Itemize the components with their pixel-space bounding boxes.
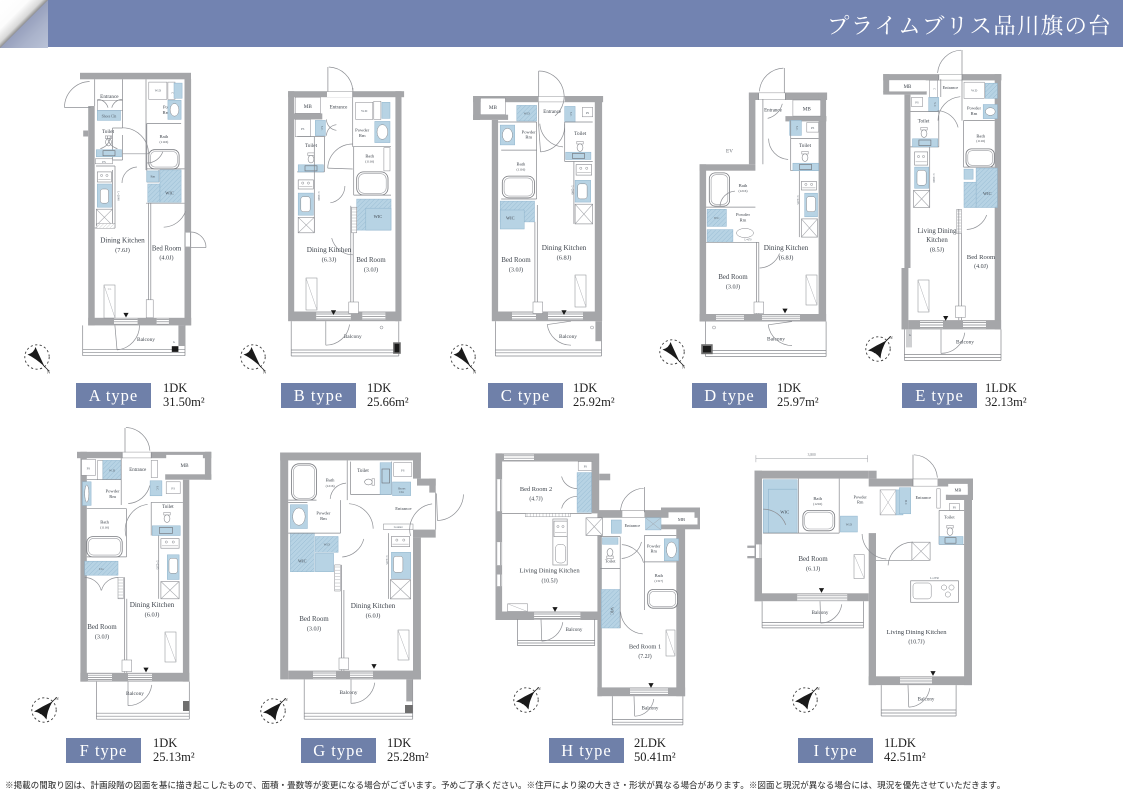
svg-text:Toilet: Toilet [357, 469, 369, 474]
svg-text:Bath: Bath [160, 134, 169, 139]
svg-text:(1116): (1116) [976, 139, 985, 143]
svg-text:(7.6J): (7.6J) [115, 247, 130, 254]
svg-text:Powder: Powder [355, 128, 370, 133]
svg-text:Balcony: Balcony [344, 334, 362, 340]
svg-text:Balcony: Balcony [956, 340, 974, 346]
svg-text:Bath: Bath [326, 478, 335, 483]
svg-text:(6.0J): (6.0J) [145, 612, 160, 619]
svg-text:Counter: Counter [394, 526, 403, 529]
svg-text:Bed Room: Bed Room [87, 624, 117, 631]
svg-text:WIC: WIC [165, 190, 174, 195]
svg-text:(3.0J): (3.0J) [307, 626, 321, 633]
svg-text:Bed Room: Bed Room [718, 274, 748, 281]
svg-text:G: G [173, 340, 176, 344]
svg-text:(1317): (1317) [655, 579, 664, 583]
svg-text:Balcony: Balcony [340, 690, 358, 696]
svg-text:Entrance: Entrance [943, 85, 959, 90]
svg-text:Balcony: Balcony [566, 628, 583, 633]
svg-text:EV: EV [726, 149, 733, 155]
svg-text:CL: CL [108, 288, 112, 291]
svg-text:C: C [933, 88, 936, 90]
svg-text:Entrance: Entrance [543, 110, 562, 115]
svg-text:Clo: Clo [99, 567, 104, 571]
svg-text:Rm: Rm [971, 111, 978, 116]
svg-text:MB: MB [954, 488, 961, 493]
svg-text:Bath: Bath [517, 162, 526, 167]
svg-text:W.D: W.D [109, 468, 116, 472]
svg-text:Bath: Bath [976, 133, 985, 138]
svg-text:PS: PS [915, 101, 919, 105]
svg-text:(6.8J): (6.8J) [557, 255, 572, 262]
svg-text:MB: MB [904, 85, 912, 90]
svg-text:(4.0J): (4.0J) [159, 255, 173, 262]
svg-text:Entrance: Entrance [915, 495, 931, 500]
svg-text:Bath: Bath [365, 154, 374, 159]
svg-text:N: N [473, 370, 477, 375]
svg-text:S.C: S.C [155, 486, 159, 490]
svg-text:(1216): (1216) [813, 502, 822, 506]
svg-text:MB: MB [180, 463, 189, 469]
svg-text:Bed Room: Bed Room [299, 616, 329, 623]
svg-text:MB: MB [803, 107, 812, 113]
svg-text:PS: PS [584, 465, 588, 469]
svg-text:(3.0J): (3.0J) [726, 284, 740, 291]
svg-text:Bed Room: Bed Room [501, 257, 531, 264]
svg-text:Shoes Cln: Shoes Cln [102, 114, 117, 118]
svg-text:MB: MB [489, 105, 498, 111]
svg-text:Entrance: Entrance [330, 105, 349, 110]
svg-text:Kitchen: Kitchen [926, 237, 948, 244]
svg-text:Toilet: Toilet [305, 143, 318, 149]
svg-text:Living Dining: Living Dining [918, 228, 957, 235]
svg-text:(1216): (1216) [738, 189, 747, 193]
svg-text:(3.0J): (3.0J) [364, 267, 378, 274]
svg-text:Toilet: Toilet [799, 143, 812, 149]
svg-text:(1216): (1216) [326, 484, 335, 488]
svg-text:Rm: Rm [651, 548, 658, 553]
svg-text:WIC: WIC [374, 214, 383, 219]
svg-text:(7.2J): (7.2J) [638, 653, 651, 660]
svg-text:Bed Room 2: Bed Room 2 [520, 486, 552, 493]
svg-text:Toilet: Toilet [944, 515, 955, 520]
svg-text:Toilet: Toilet [918, 120, 930, 125]
svg-text:(3.0J): (3.0J) [95, 634, 109, 641]
svg-text:L=2040: L=2040 [571, 186, 574, 195]
svg-text:L=2550: L=2550 [930, 577, 939, 580]
svg-text:Powder: Powder [522, 129, 537, 134]
svg-text:S.C: S.C [795, 126, 799, 130]
svg-text:L=2235: L=2235 [385, 556, 388, 565]
svg-text:Dining Kitchen: Dining Kitchen [130, 601, 175, 609]
svg-text:Toilet: Toilet [605, 559, 616, 564]
svg-text:Entrance: Entrance [100, 94, 119, 100]
svg-text:Dining Kitchen: Dining Kitchen [764, 244, 809, 252]
svg-text:Rm: Rm [109, 494, 116, 499]
svg-text:3,800: 3,800 [808, 453, 816, 458]
svg-text:WIC: WIC [506, 215, 515, 220]
svg-text:PS: PS [401, 469, 405, 473]
svg-text:(1116): (1116) [100, 526, 109, 530]
svg-text:Dining Kitchen: Dining Kitchen [100, 237, 145, 245]
svg-text:Rm: Rm [359, 133, 366, 138]
svg-text:W.D: W.D [846, 522, 853, 526]
svg-text:Toilet: Toilet [162, 505, 174, 510]
svg-text:Powder: Powder [736, 212, 751, 217]
svg-text:B.C: B.C [904, 500, 908, 505]
svg-text:MB: MB [678, 517, 685, 522]
svg-text:PS: PS [87, 466, 91, 470]
svg-text:W.D: W.D [524, 111, 531, 115]
svg-text:Toilet: Toilet [102, 129, 115, 135]
svg-text:L=2235: L=2235 [796, 196, 799, 205]
svg-text:Bed Room: Bed Room [356, 257, 386, 264]
svg-text:(1116): (1116) [365, 160, 374, 164]
svg-text:PS: PS [301, 127, 305, 131]
svg-text:Bed Room: Bed Room [152, 246, 182, 253]
svg-text:N: N [55, 696, 59, 701]
svg-text:WIC: WIC [780, 510, 789, 515]
svg-text:PS: PS [171, 487, 175, 491]
svg-text:Entrance: Entrance [395, 506, 411, 511]
svg-text:L=2040: L=2040 [317, 192, 320, 201]
svg-text:L=670: L=670 [745, 239, 753, 242]
svg-text:Dining Kitchen: Dining Kitchen [542, 244, 587, 252]
svg-text:PS: PS [811, 126, 815, 130]
svg-text:Rm: Rm [150, 174, 155, 178]
svg-text:W.D: W.D [155, 89, 162, 93]
svg-text:Rm: Rm [740, 218, 747, 223]
svg-text:WIC: WIC [983, 191, 992, 196]
svg-text:(4.0J): (4.0J) [974, 263, 988, 270]
svg-text:Powder: Powder [106, 488, 121, 493]
svg-text:L=2235: L=2235 [155, 561, 158, 570]
svg-text:Bath: Bath [655, 573, 664, 578]
svg-text:L=2040: L=2040 [932, 174, 935, 183]
svg-text:Balcony: Balcony [918, 698, 935, 703]
svg-text:W.D: W.D [971, 88, 978, 92]
svg-text:Balcony: Balcony [126, 691, 144, 697]
svg-text:S.C: S.C [320, 126, 324, 130]
svg-text:Balcony: Balcony [137, 337, 155, 343]
svg-text:Bed Room: Bed Room [967, 254, 996, 261]
svg-text:Rm: Rm [320, 516, 327, 521]
svg-text:Balcony: Balcony [559, 334, 577, 340]
svg-text:WIC: WIC [298, 559, 307, 564]
svg-text:N: N [284, 697, 288, 702]
svg-text:Entrance: Entrance [625, 523, 641, 528]
svg-text:Powder: Powder [967, 106, 982, 111]
svg-text:L=2040: L=2040 [117, 191, 121, 201]
svg-text:MB: MB [304, 104, 313, 110]
svg-text:Living Dining Kitchen: Living Dining Kitchen [520, 568, 581, 575]
svg-text:Bath: Bath [739, 183, 748, 188]
svg-text:(1116): (1116) [517, 168, 526, 172]
svg-text:W.D: W.D [324, 543, 331, 547]
svg-text:(10.5J): (10.5J) [541, 578, 557, 585]
svg-text:PS: PS [586, 111, 590, 115]
svg-text:(6.8J): (6.8J) [779, 255, 794, 262]
svg-text:(4.7J): (4.7J) [529, 496, 542, 503]
svg-text:Rm: Rm [525, 135, 532, 140]
svg-text:(1116): (1116) [160, 140, 169, 144]
svg-text:S.C: S.C [933, 102, 937, 106]
svg-text:Cln: Cln [399, 490, 404, 494]
svg-text:W.D: W.D [361, 109, 368, 113]
svg-text:(3.0J): (3.0J) [509, 267, 523, 274]
svg-text:N: N [47, 370, 51, 375]
svg-text:N: N [537, 686, 541, 691]
svg-text:Bed Room 1: Bed Room 1 [629, 644, 661, 651]
svg-text:Bath: Bath [100, 520, 109, 525]
svg-text:Dining Kitchen: Dining Kitchen [307, 246, 352, 254]
svg-text:Rm: Rm [857, 500, 864, 505]
svg-text:PS: PS [953, 506, 957, 510]
svg-text:(6.3J): (6.3J) [322, 257, 337, 264]
svg-text:WIC: WIC [610, 607, 614, 615]
svg-text:Bed Room: Bed Room [798, 556, 828, 563]
svg-text:Bath: Bath [813, 496, 822, 501]
svg-text:(8.5J): (8.5J) [930, 247, 944, 254]
svg-text:N: N [889, 335, 893, 340]
svg-text:(6.0J): (6.0J) [366, 613, 381, 620]
svg-text:Dining Kitchen: Dining Kitchen [351, 602, 396, 610]
svg-text:N: N [263, 370, 267, 375]
svg-text:Powder: Powder [316, 510, 331, 515]
svg-text:Toilet: Toilet [574, 131, 587, 137]
svg-text:S.C: S.C [569, 112, 573, 116]
svg-text:Living Dining Kitchen: Living Dining Kitchen [886, 629, 947, 636]
svg-text:N: N [682, 365, 686, 370]
svg-text:(10.7J): (10.7J) [908, 639, 924, 646]
svg-text:N: N [816, 686, 820, 691]
svg-text:PS: PS [102, 160, 106, 164]
svg-text:W.C: W.C [714, 216, 720, 220]
svg-text:Entrance: Entrance [129, 468, 146, 473]
svg-text:(6.1J): (6.1J) [806, 566, 820, 573]
